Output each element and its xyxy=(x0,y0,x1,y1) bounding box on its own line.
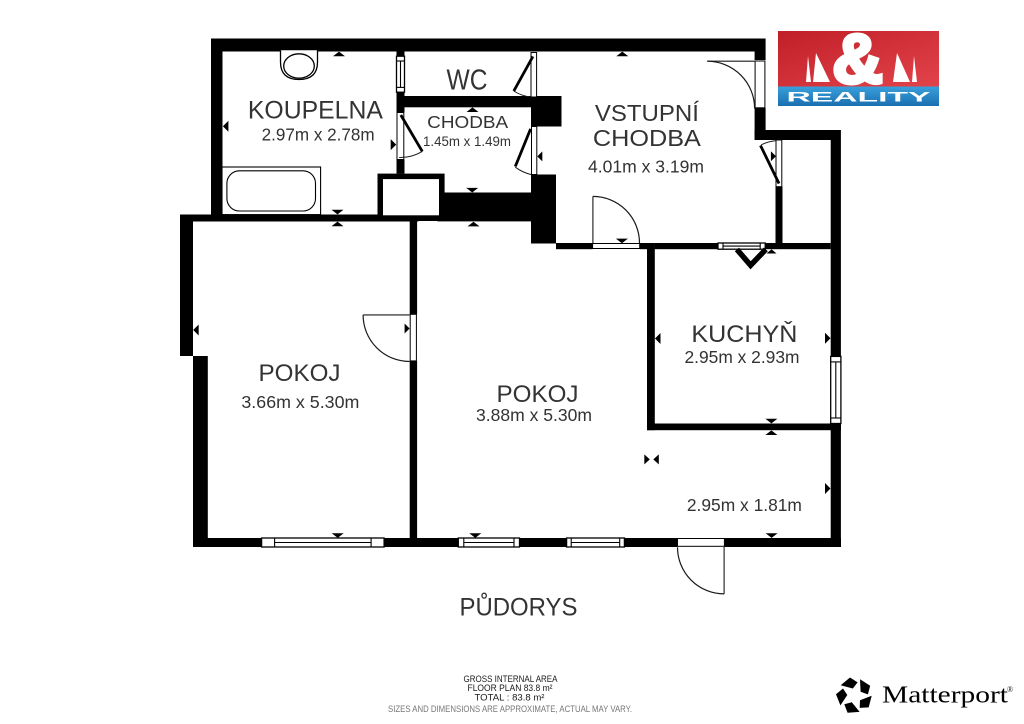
svg-text:®: ® xyxy=(1007,685,1013,694)
svg-text:KOUPELNA: KOUPELNA xyxy=(248,96,383,124)
svg-text:WC: WC xyxy=(447,64,488,96)
svg-text:&: & xyxy=(832,20,883,98)
svg-text:CHODBA: CHODBA xyxy=(427,112,508,132)
svg-text:REALITY: REALITY xyxy=(787,90,931,105)
svg-text:KUCHYŇ: KUCHYŇ xyxy=(691,321,797,348)
svg-text:PŮDORYS: PŮDORYS xyxy=(460,591,578,622)
svg-text:4.01m x 3.19m: 4.01m x 3.19m xyxy=(588,157,704,177)
svg-text:3.88m x 5.30m: 3.88m x 5.30m xyxy=(476,405,592,425)
svg-text:1.45m x 1.49m: 1.45m x 1.49m xyxy=(423,134,511,149)
svg-text:SIZES AND DIMENSIONS ARE APPRO: SIZES AND DIMENSIONS ARE APPROXIMATE, AC… xyxy=(388,704,632,715)
svg-text:TOTAL : 83.8 m²: TOTAL : 83.8 m² xyxy=(475,693,545,704)
svg-text:2.95m x 2.93m: 2.95m x 2.93m xyxy=(685,347,800,367)
svg-text:2.95m x 1.81m: 2.95m x 1.81m xyxy=(687,495,802,515)
svg-text:VSTUPNÍ: VSTUPNÍ xyxy=(595,100,699,126)
svg-text:2.97m x 2.78m: 2.97m x 2.78m xyxy=(262,125,375,145)
svg-text:POKOJ: POKOJ xyxy=(259,360,341,387)
svg-text:3.66m x 5.30m: 3.66m x 5.30m xyxy=(241,392,359,412)
svg-text:Matterport: Matterport xyxy=(882,682,1008,709)
svg-text:CHODBA: CHODBA xyxy=(593,125,701,151)
svg-text:POKOJ: POKOJ xyxy=(497,381,579,408)
